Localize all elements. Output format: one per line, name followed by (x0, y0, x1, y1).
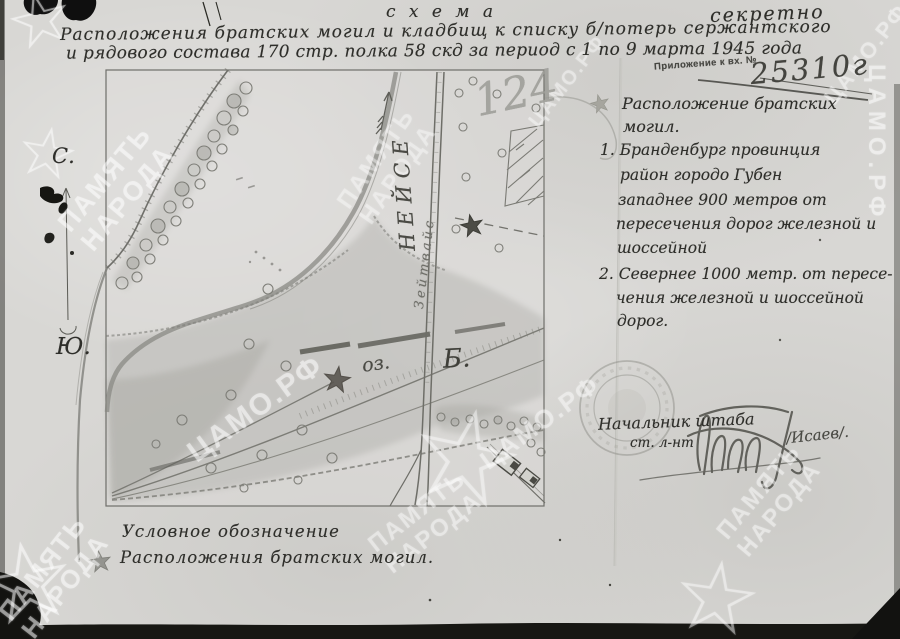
note-line: чения железной и шоссейной (616, 289, 864, 307)
scanned-document-page: ☆ ☆ ☆ ☆ ☆ ПАМЯТЬ НАРОДА ПАМЯТЬ НАРОДА ЦА… (0, 0, 900, 639)
note-line: 1. Бранденбург провинция (600, 141, 820, 159)
compass-north-label: С. (52, 144, 75, 168)
signature-rank-line: ст. л-нт (630, 435, 694, 451)
note-line: дорог. (617, 312, 668, 330)
lake-label: оз. (361, 351, 392, 377)
legend-star-icon (88, 550, 111, 573)
note-line: район городо Губен (620, 166, 782, 184)
note-line: 2. Севернее 1000 метр. от пересе- (599, 265, 893, 283)
legend-title: Условное обозначение (122, 522, 340, 541)
note-line: шоссейной (617, 239, 707, 257)
compass-south-label: Ю. (56, 334, 91, 360)
note-line: пересечения дорог железной и (616, 215, 876, 233)
note-line: западнее 900 метров от (618, 191, 827, 209)
notes-heading-line: Расположение братских (622, 94, 837, 113)
notes-heading-line: могил. (623, 117, 680, 136)
settlement-label: Б. (442, 343, 471, 374)
legend-item-label: Расположения братских могил. (120, 548, 434, 567)
schema-heading: с х е м а (386, 2, 497, 22)
